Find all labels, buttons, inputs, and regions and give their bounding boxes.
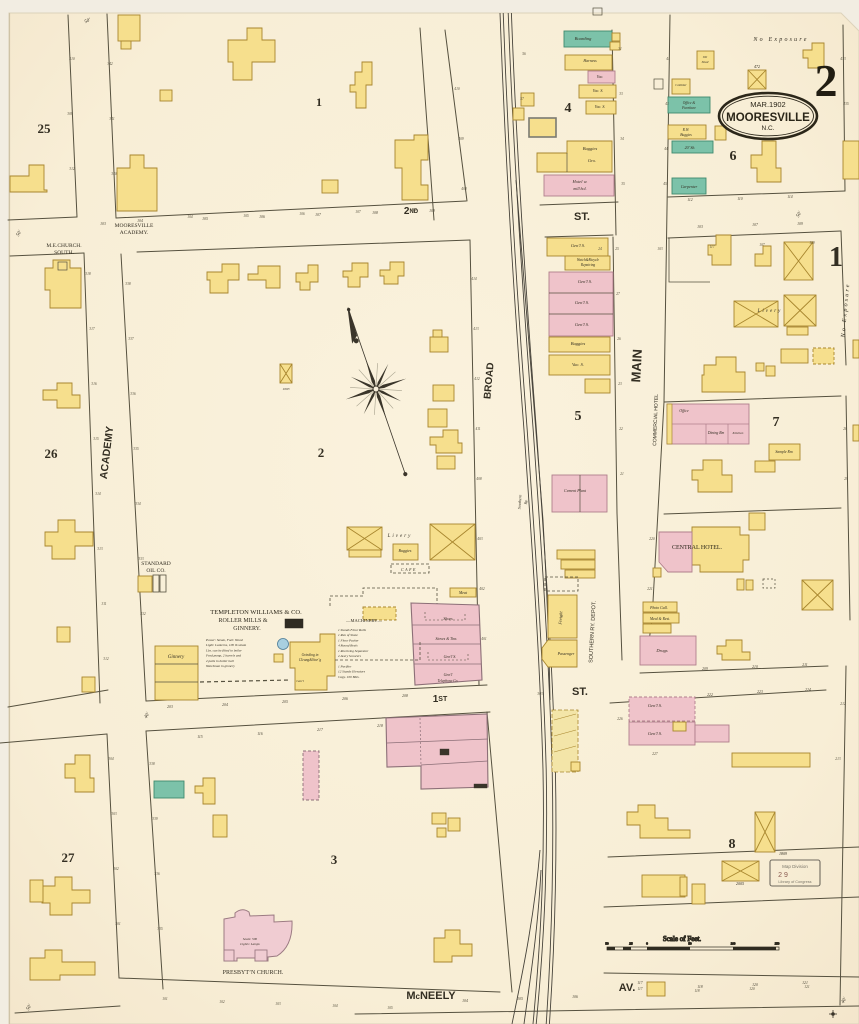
svg-text:Kitchen: Kitchen (732, 431, 744, 435)
svg-text:337: 337 (128, 337, 134, 341)
svg-text:223: 223 (757, 690, 763, 694)
svg-text:Cobbler: Cobbler (675, 83, 687, 87)
svg-text:27: 27 (62, 850, 76, 865)
svg-text:33: 33 (619, 92, 623, 96)
svg-text:312: 312 (69, 167, 75, 171)
svg-text:221: 221 (647, 587, 653, 591)
svg-text:224: 224 (805, 688, 811, 692)
svg-text:412: 412 (474, 377, 480, 381)
svg-text:AV.: AV. (619, 982, 636, 994)
svg-text:Repairing: Repairing (580, 263, 596, 267)
svg-text:27: 27 (616, 292, 620, 296)
svg-text:314: 314 (95, 492, 101, 496)
svg-text:117: 117 (637, 987, 642, 991)
svg-text:Boarding: Boarding (575, 36, 593, 41)
svg-text:1809: 1809 (779, 851, 787, 856)
svg-text:29: 29 (844, 477, 848, 481)
svg-text:105: 105 (517, 997, 523, 1001)
svg-text:25: 25 (615, 247, 619, 251)
svg-text:408: 408 (476, 477, 482, 481)
svg-text:106: 106 (572, 995, 578, 999)
svg-text:43: 43 (665, 102, 669, 106)
svg-text:204: 204 (222, 703, 228, 707)
svg-text:334: 334 (135, 502, 141, 506)
svg-text:57: 57 (520, 97, 524, 101)
svg-text:25: 25 (629, 942, 633, 946)
svg-text:310: 310 (69, 57, 75, 61)
svg-text:312: 312 (103, 657, 109, 661)
svg-text:401: 401 (481, 637, 487, 641)
svg-text:Grinding in: Grinding in (302, 653, 319, 657)
svg-text:1003: 1003 (283, 387, 290, 391)
svg-text:109: 109 (429, 209, 435, 213)
svg-text:313: 313 (97, 547, 103, 551)
svg-text:104: 104 (332, 1004, 338, 1008)
svg-text:103: 103 (657, 247, 663, 251)
svg-text:GINNERY.: GINNERY. (233, 626, 261, 632)
svg-text:2 Avery Scourers: 2 Avery Scourers (338, 654, 362, 658)
svg-text:414: 414 (471, 277, 477, 281)
svg-text:340: 340 (111, 172, 117, 176)
svg-text:112: 112 (687, 198, 693, 202)
svg-text:115: 115 (197, 735, 203, 739)
svg-text:318: 318 (85, 272, 91, 276)
svg-text:4: 4 (565, 101, 572, 116)
svg-text:2: 2 (318, 445, 325, 460)
svg-text:ACADEMY.: ACADEMY. (120, 230, 149, 236)
svg-text:Buggies: Buggies (583, 146, 598, 151)
svg-text:Meat: Meat (458, 590, 468, 595)
svg-text:303: 303 (537, 692, 543, 696)
svg-text:410: 410 (454, 87, 460, 91)
svg-text:Office: Office (679, 409, 689, 413)
svg-text:25: 25 (38, 121, 52, 136)
svg-text:12 Stands Elevators: 12 Stands Elevators (338, 670, 366, 674)
svg-text:Dining Rm: Dining Rm (707, 431, 725, 435)
svg-text:104: 104 (187, 215, 193, 219)
svg-text:301: 301 (115, 922, 121, 926)
svg-text:107: 107 (759, 243, 765, 247)
svg-text:Vac.: Vac. (597, 74, 604, 79)
svg-text:Vac. S.: Vac. S. (593, 88, 604, 93)
svg-text:117: 117 (709, 245, 714, 249)
svg-text:—MACHINERY—: —MACHINERY— (345, 618, 383, 623)
svg-text:335: 335 (157, 927, 163, 931)
svg-text:24: 24 (598, 247, 602, 251)
svg-text:206: 206 (342, 697, 348, 701)
svg-text:338: 338 (149, 762, 155, 766)
svg-text:Drugs: Drugs (655, 648, 668, 653)
svg-text:411: 411 (475, 427, 480, 431)
svg-text:109: 109 (797, 222, 803, 226)
svg-text:104: 104 (137, 219, 143, 223)
svg-text:208: 208 (402, 694, 408, 698)
svg-text:103: 103 (100, 222, 106, 226)
svg-text:Cleang&Stor’g: Cleang&Stor’g (299, 658, 321, 662)
svg-text:108: 108 (372, 211, 378, 215)
svg-text:4 Round Reels: 4 Round Reels (338, 644, 358, 648)
svg-text:105: 105 (387, 1006, 393, 1010)
svg-text:23: 23 (618, 382, 622, 386)
svg-text:22: 22 (619, 427, 623, 431)
svg-text:STANDARD: STANDARD (141, 561, 171, 567)
svg-text:102: 102 (219, 1000, 225, 1004)
svg-text:35: 35 (621, 182, 625, 186)
svg-text:McNEELY: McNEELY (406, 990, 456, 1002)
svg-text:226: 226 (617, 717, 623, 721)
svg-text:MAIN: MAIN (628, 349, 645, 383)
svg-text:SOUTH.: SOUTH. (54, 250, 74, 256)
svg-text:N.C.: N.C. (762, 125, 775, 132)
svg-text:311: 311 (101, 602, 106, 606)
svg-text:Southern: Southern (517, 495, 523, 510)
svg-text:333: 333 (138, 557, 144, 561)
svg-text:Gen'l S.: Gen'l S. (575, 300, 589, 305)
svg-text:CENTRAL HOTEL.: CENTRAL HOTEL. (672, 545, 723, 551)
svg-text:Freight: Freight (558, 610, 564, 625)
svg-text:Buggies: Buggies (571, 341, 586, 346)
svg-text:101: 101 (162, 997, 168, 1001)
svg-text:Capy. 100 Bbls.: Capy. 100 Bbls. (338, 675, 360, 679)
svg-text:Gen'l: Gen'l (444, 672, 454, 677)
svg-text:106: 106 (299, 212, 305, 216)
svg-text:ST.: ST. (572, 686, 588, 698)
svg-text:315: 315 (93, 437, 99, 441)
svg-text:403: 403 (477, 537, 483, 541)
svg-text:116: 116 (257, 732, 263, 736)
svg-text:336: 336 (130, 392, 136, 396)
svg-text:1 Purifier: 1 Purifier (338, 664, 352, 668)
svg-text:Buggies: Buggies (680, 133, 692, 137)
svg-text:5: 5 (575, 409, 582, 424)
svg-text:No Exposure: No Exposure (752, 37, 808, 43)
svg-text:Telephone Co.: Telephone Co. (438, 679, 459, 683)
svg-text:31: 31 (618, 47, 622, 51)
svg-text:211: 211 (802, 663, 808, 667)
svg-text:435: 435 (843, 102, 849, 106)
svg-text:44: 44 (664, 147, 668, 151)
svg-text:MOORESVILLE: MOORESVILLE (115, 223, 154, 229)
svg-text:121: 121 (804, 985, 810, 989)
svg-text:PRESBYT’N CHURCH.: PRESBYT’N CHURCH. (223, 970, 284, 976)
svg-text:218: 218 (377, 724, 383, 728)
svg-text:338: 338 (125, 282, 131, 286)
svg-text:1 Flour Packer: 1 Flour Packer (338, 638, 359, 642)
svg-text:Meal & Rest.: Meal & Rest. (649, 617, 670, 621)
svg-text:2: 2 (815, 55, 838, 106)
svg-text:110: 110 (737, 197, 743, 201)
svg-text:1 Run of Stone: 1 Run of Stone (338, 633, 358, 637)
svg-text:341: 341 (109, 117, 115, 121)
svg-text:203: 203 (167, 705, 173, 709)
svg-text:Scale of Feet.: Scale of Feet. (663, 935, 702, 943)
svg-text:Gen'l S.: Gen'l S. (575, 322, 589, 327)
svg-text:26: 26 (45, 446, 59, 461)
svg-text:205: 205 (282, 700, 288, 704)
svg-text:402: 402 (479, 587, 485, 591)
svg-text:Sample Rm: Sample Rm (775, 450, 792, 454)
svg-text:Photo Gall.: Photo Gall. (649, 606, 668, 610)
svg-text:339: 339 (152, 817, 158, 821)
svg-text:Ginnery: Ginnery (168, 655, 185, 660)
svg-text:MOORESVILLE: MOORESVILLE (726, 112, 810, 124)
svg-text:227: 227 (652, 752, 658, 756)
svg-text:Gen'l: Gen'l (296, 679, 303, 683)
svg-text:3: 3 (331, 852, 338, 867)
svg-text:209: 209 (702, 667, 708, 671)
svg-text:100: 100 (731, 942, 736, 946)
svg-text:Vac. S.: Vac. S. (595, 104, 606, 109)
svg-text:56: 56 (522, 52, 526, 56)
svg-text:103: 103 (697, 225, 703, 229)
svg-text:Watch&Bicycle: Watch&Bicycle (577, 258, 600, 262)
svg-text:Buggies: Buggies (399, 548, 412, 553)
svg-text:41: 41 (666, 57, 670, 61)
svg-text:ST.: ST. (574, 211, 590, 223)
svg-text:2 pails in boiler hall: 2 pails in boiler hall (206, 659, 234, 663)
svg-text:34: 34 (620, 137, 624, 141)
svg-text:Shoes: Shoes (443, 616, 453, 621)
svg-text:45: 45 (663, 182, 667, 186)
svg-text:26: 26 (617, 337, 621, 341)
svg-text:220: 220 (649, 537, 655, 541)
svg-text:332: 332 (140, 612, 146, 616)
svg-text:1: 1 (829, 242, 843, 273)
svg-text:105: 105 (202, 217, 208, 221)
svg-text:1 Receiving Separator: 1 Receiving Separator (338, 649, 369, 653)
svg-text:409: 409 (458, 137, 464, 141)
svg-text:316: 316 (91, 382, 97, 386)
svg-text:50: 50 (605, 942, 609, 946)
svg-text:Gen'l S.: Gen'l S. (648, 731, 662, 736)
svg-text:212: 212 (840, 702, 846, 706)
svg-text:mill hol.: mill hol. (573, 186, 586, 191)
svg-text:TEMPLETON WILLIAMS & CO.: TEMPLETON WILLIAMS & CO. (210, 609, 302, 616)
svg-text:Lbs. can be fitted to boiler: Lbs. can be fitted to boiler (205, 648, 242, 652)
svg-text:302: 302 (113, 867, 119, 871)
svg-text:Ry.: Ry. (523, 499, 528, 505)
svg-text:Shed: Shed (702, 60, 709, 64)
svg-text:Gro.: Gro. (588, 158, 596, 163)
svg-text:472: 472 (754, 64, 760, 69)
svg-text:120: 120 (749, 987, 755, 991)
svg-text:ROLLER MILLS &: ROLLER MILLS & (219, 618, 268, 624)
svg-text:114: 114 (787, 195, 793, 199)
svg-text:Oil: Oil (703, 55, 708, 59)
svg-text:Passenger: Passenger (557, 651, 575, 656)
svg-text:213: 213 (835, 757, 841, 761)
svg-text:105: 105 (243, 214, 249, 218)
svg-text:Gen'l S.: Gen'l S. (444, 654, 457, 659)
svg-text:MAR.1902: MAR.1902 (750, 100, 785, 109)
svg-text:OIL CO.: OIL CO. (146, 568, 166, 574)
svg-text:2005: 2005 (736, 881, 744, 886)
svg-text:20' Sh.: 20' Sh. (685, 145, 696, 150)
svg-text:21: 21 (620, 472, 624, 476)
svg-text:Gen'l S.: Gen'l S. (578, 279, 592, 284)
svg-text:50: 50 (688, 942, 692, 946)
svg-text:Livery: Livery (757, 309, 783, 314)
svg-text:408: 408 (461, 187, 467, 191)
svg-text:Cement Plant: Cement Plant (564, 488, 587, 493)
svg-text:335: 335 (133, 447, 139, 451)
svg-text:Gen'l S.: Gen'l S. (648, 703, 662, 708)
svg-text:103: 103 (275, 1002, 281, 1006)
svg-text:106: 106 (259, 215, 265, 219)
svg-text:Lights: Lamps: Lights: Lamps (239, 942, 260, 946)
svg-text:6: 6 (730, 149, 737, 164)
svg-text:Vac. S.: Vac. S. (572, 362, 584, 367)
svg-text:108: 108 (411, 208, 417, 212)
svg-text:342: 342 (107, 62, 113, 66)
svg-text:Seats: 500: Seats: 500 (243, 937, 258, 941)
svg-text:118: 118 (694, 989, 699, 993)
svg-text:222: 222 (707, 693, 713, 697)
svg-text:28: 28 (843, 427, 847, 431)
svg-text:Gen'l S.: Gen'l S. (571, 243, 585, 248)
svg-text:Office &: Office & (683, 101, 696, 105)
svg-text:Furniture: Furniture (681, 106, 696, 110)
svg-text:317: 317 (89, 327, 95, 331)
svg-text:150: 150 (775, 942, 780, 946)
svg-text:433: 433 (840, 57, 846, 61)
svg-text:1: 1 (316, 95, 322, 109)
svg-text:Carpenter: Carpenter (681, 184, 698, 189)
svg-text:109: 109 (809, 241, 815, 245)
svg-text:2 9: 2 9 (778, 872, 788, 879)
svg-text:107: 107 (355, 210, 361, 214)
svg-text:104: 104 (462, 999, 468, 1003)
svg-text:Hotel w.: Hotel w. (572, 179, 588, 184)
svg-text:304: 304 (108, 757, 114, 761)
svg-text:M.E.CHURCH.: M.E.CHURCH. (46, 243, 82, 249)
svg-text:Library of Congress: Library of Congress (778, 880, 811, 884)
svg-text:R.W.: R.W. (682, 128, 690, 132)
svg-text:309: 309 (67, 112, 73, 116)
svg-text:Map Division: Map Division (782, 864, 808, 869)
svg-text:7: 7 (773, 415, 780, 430)
svg-text:1 Stands Flour Rolls: 1 Stands Flour Rolls (338, 628, 367, 632)
svg-text:Watchman in ginnery: Watchman in ginnery (206, 664, 235, 668)
svg-text:413: 413 (473, 327, 479, 331)
svg-text:Stoves & Tins: Stoves & Tins (436, 637, 457, 641)
svg-text:Livery: Livery (387, 534, 413, 539)
svg-text:303: 303 (111, 812, 117, 816)
svg-text:8: 8 (729, 837, 736, 852)
svg-text:CAFE: CAFE (401, 567, 417, 572)
svg-text:Harness: Harness (582, 58, 597, 63)
svg-text:210: 210 (752, 665, 758, 669)
svg-text:336: 336 (154, 872, 160, 876)
